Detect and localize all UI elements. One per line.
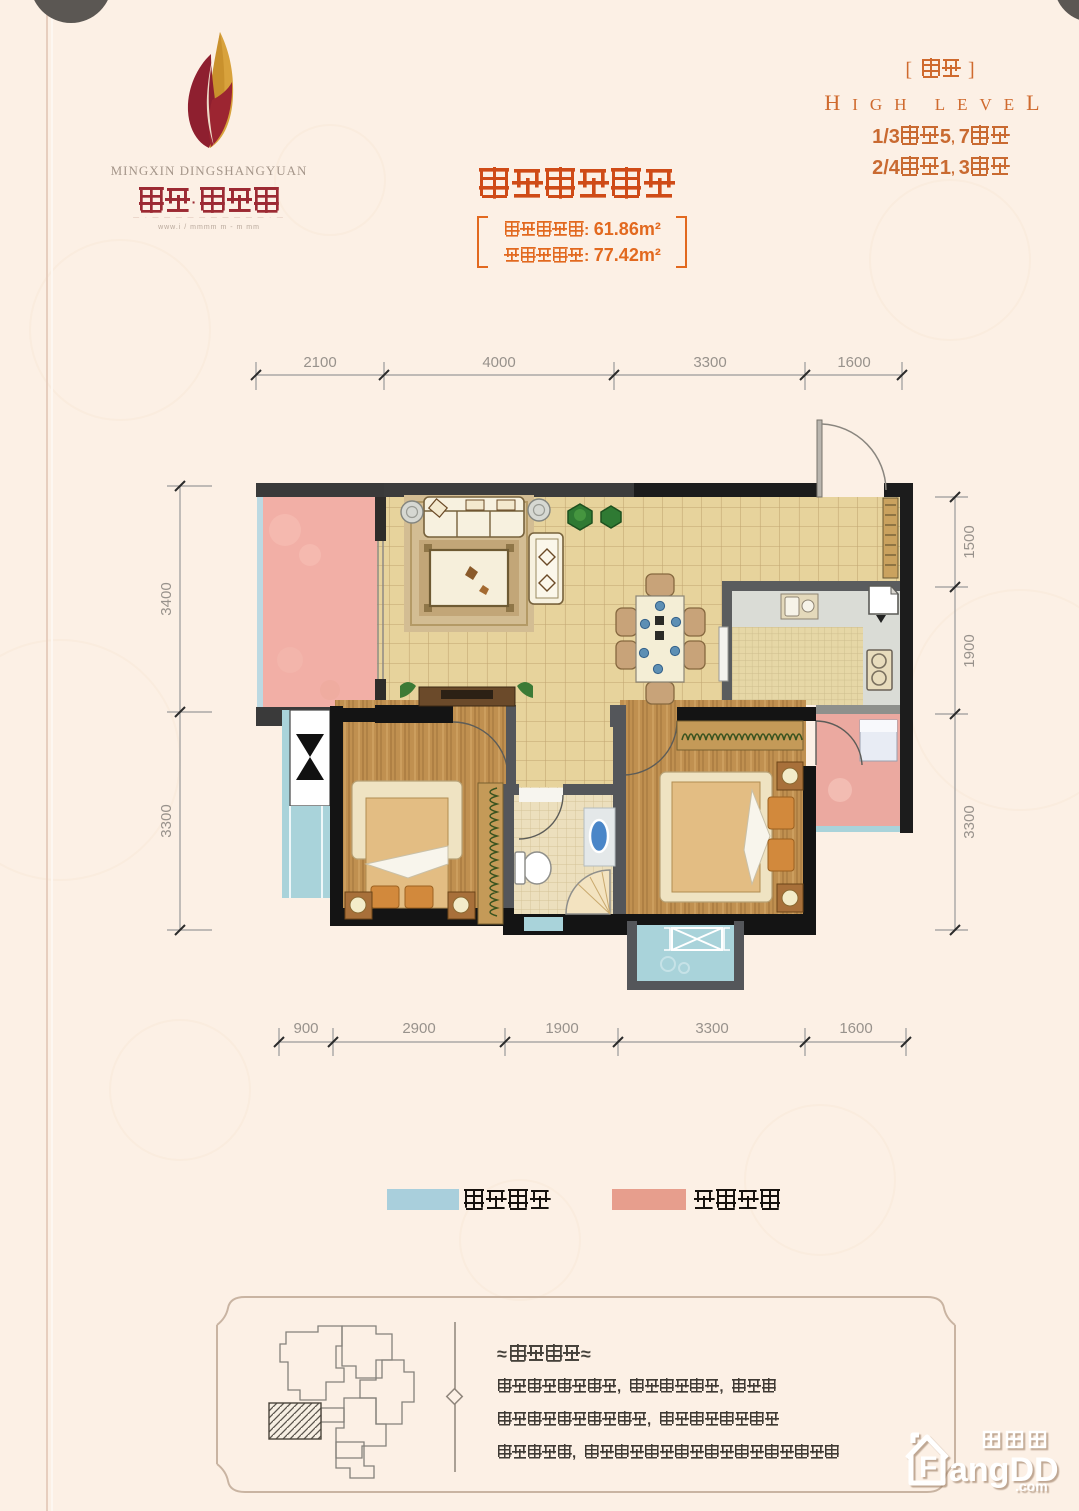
svg-text:3300: 3300 xyxy=(695,1020,728,1037)
svg-text:2100: 2100 xyxy=(303,354,336,371)
svg-text:3300: 3300 xyxy=(961,805,978,838)
svg-text:3400: 3400 xyxy=(158,582,175,615)
svg-text:2900: 2900 xyxy=(402,1020,435,1037)
svg-text:1900: 1900 xyxy=(545,1020,578,1037)
svg-text:1600: 1600 xyxy=(839,1020,872,1037)
svg-text:4000: 4000 xyxy=(482,354,515,371)
svg-text:3300: 3300 xyxy=(693,354,726,371)
svg-text:1600: 1600 xyxy=(837,354,870,371)
svg-text:3300: 3300 xyxy=(158,804,175,837)
svg-text:.com: .com xyxy=(1015,1478,1048,1494)
svg-text:F: F xyxy=(919,1451,937,1484)
svg-text:900: 900 xyxy=(293,1020,318,1037)
svg-text:1900: 1900 xyxy=(961,634,978,667)
svg-text:1500: 1500 xyxy=(961,525,978,558)
